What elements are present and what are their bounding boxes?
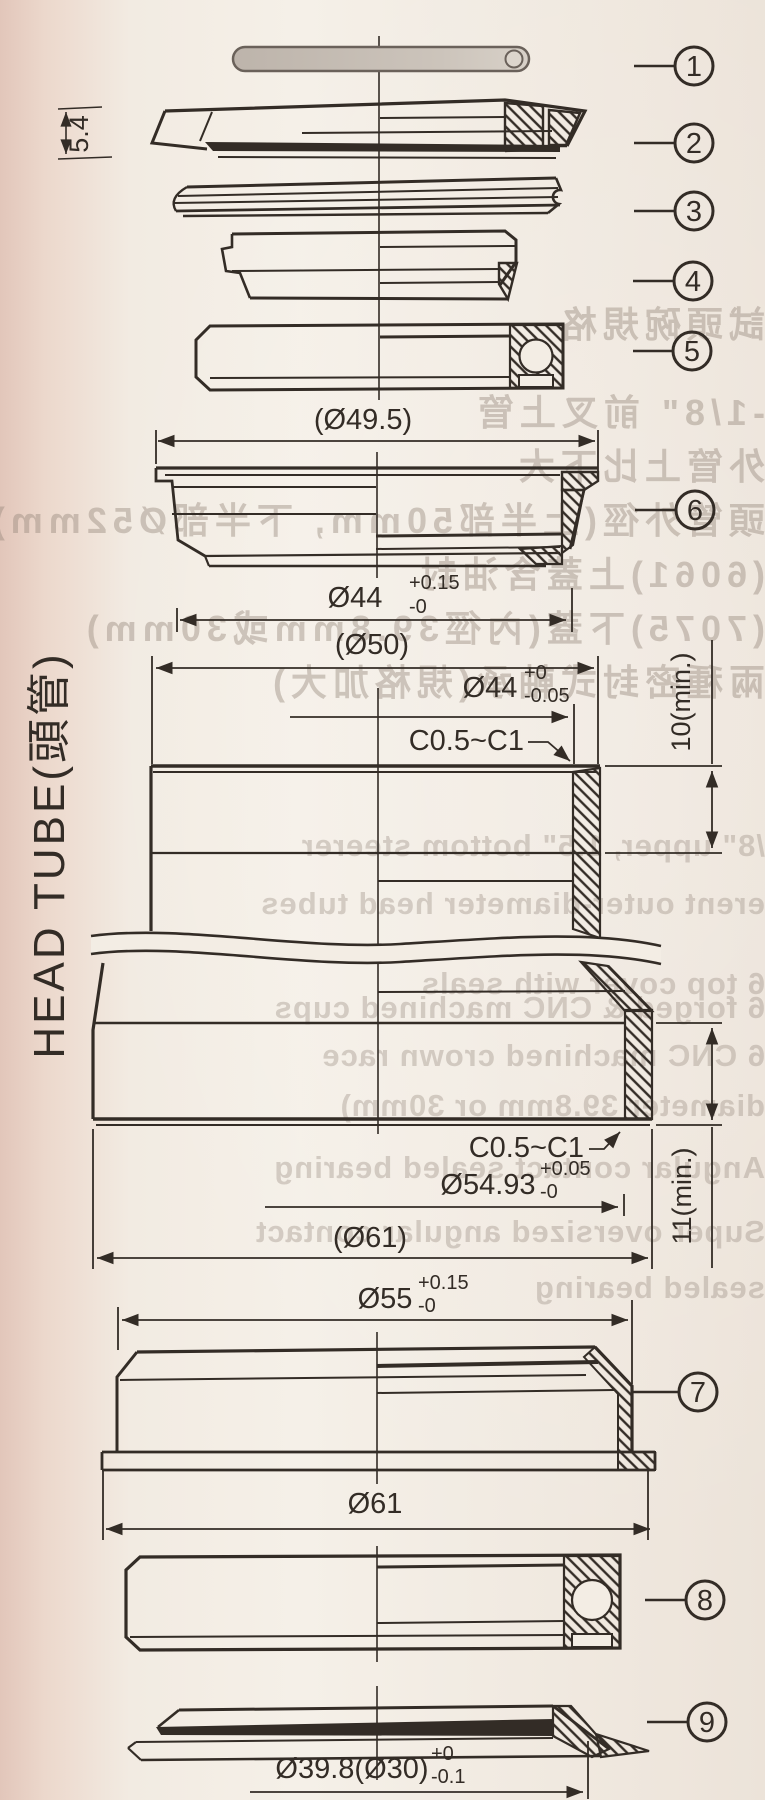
head-tube-title: HEAD TUBE(頭管) (25, 651, 74, 1058)
balloon-1: 1 (634, 47, 713, 85)
dim-49-5-label: (Ø49.5) (314, 404, 412, 436)
dim-54-93-label: Ø54.93 (440, 1169, 535, 1201)
svg-text:3: 3 (686, 196, 702, 228)
svg-text:9: 9 (699, 1707, 715, 1739)
chamfer-note-top: C0.5~C1 (409, 725, 524, 757)
dim-44-cup-label: Ø44 (328, 582, 383, 614)
bearing-ball (520, 340, 553, 373)
head-tube-section (91, 766, 661, 1125)
dim-55-sup: +0.15 (418, 1272, 469, 1294)
dim-depth-top-label: 10(min.) (666, 652, 696, 751)
balloon-6: 6 (635, 491, 714, 529)
part-top-cover (152, 100, 585, 158)
svg-text:6: 6 (687, 495, 703, 527)
part-lower-bearing (126, 1555, 620, 1650)
balloon-2: 2 (634, 124, 713, 162)
balloon-callouts: 1 2 3 4 5 (633, 47, 726, 1741)
chamfer-leader-bottom (589, 1132, 620, 1149)
dim-54-93-sub: -0 (540, 1181, 558, 1203)
balloon-8: 8 (645, 1581, 724, 1619)
dim-cover-height-label: 5.4 (64, 115, 94, 153)
scanned-headset-drawing-page: 試頭碗規格 -1/8" 前叉上管 外管上比下大 頭管外徑(上半部50mm, 下半… (0, 0, 765, 1800)
dim-44-ht-sub: -0.05 (524, 685, 570, 707)
svg-text:8: 8 (697, 1585, 713, 1617)
svg-text:4: 4 (685, 266, 701, 298)
part-crown-race (128, 1706, 649, 1760)
technical-drawing: 5.4 (Ø49.5) (0, 0, 765, 1800)
balloon-7: 7 (633, 1373, 717, 1411)
dim-39-8-sup: +0 (431, 1743, 454, 1765)
svg-text:7: 7 (690, 1377, 706, 1409)
dim-44-ht-label: Ø44 (463, 672, 518, 704)
balloon-5: 5 (633, 332, 711, 370)
dim-61-ht-label: (Ø61) (333, 1222, 407, 1254)
balloon-9: 9 (647, 1703, 726, 1741)
part-compression-ring (174, 178, 561, 216)
dim-39-8-label: Ø39.8(Ø30) (275, 1753, 428, 1785)
dim-depth-top (605, 640, 722, 853)
oring-end-hole (506, 51, 523, 68)
dim-44-cup-sup: +0.15 (409, 572, 460, 594)
svg-text:2: 2 (686, 128, 702, 160)
chamfer-leader-top (528, 742, 570, 761)
dim-39-8-sub: -0.1 (431, 1766, 465, 1788)
part-lower-cup (102, 1347, 655, 1470)
dim-55-label: Ø55 (358, 1283, 413, 1315)
dim-61-cup-label: Ø61 (348, 1488, 403, 1520)
dim-50-label: (Ø50) (335, 629, 409, 661)
balloon-3: 3 (634, 192, 713, 230)
dim-44-ht-sup: +0 (524, 662, 547, 684)
dim-44-cup-sub: -0 (409, 596, 427, 618)
part-cone-spacer (222, 231, 517, 299)
part-oring (233, 47, 529, 71)
bearing-ball (572, 1580, 612, 1620)
dim-55-sub: -0 (418, 1295, 436, 1317)
dim-54-93-sup: +0.05 (540, 1158, 591, 1180)
svg-text:1: 1 (686, 51, 702, 83)
dim-depth-bottom-label: 11(min.) (667, 1147, 697, 1244)
balloon-4: 4 (633, 262, 712, 300)
svg-text:5: 5 (684, 336, 700, 368)
